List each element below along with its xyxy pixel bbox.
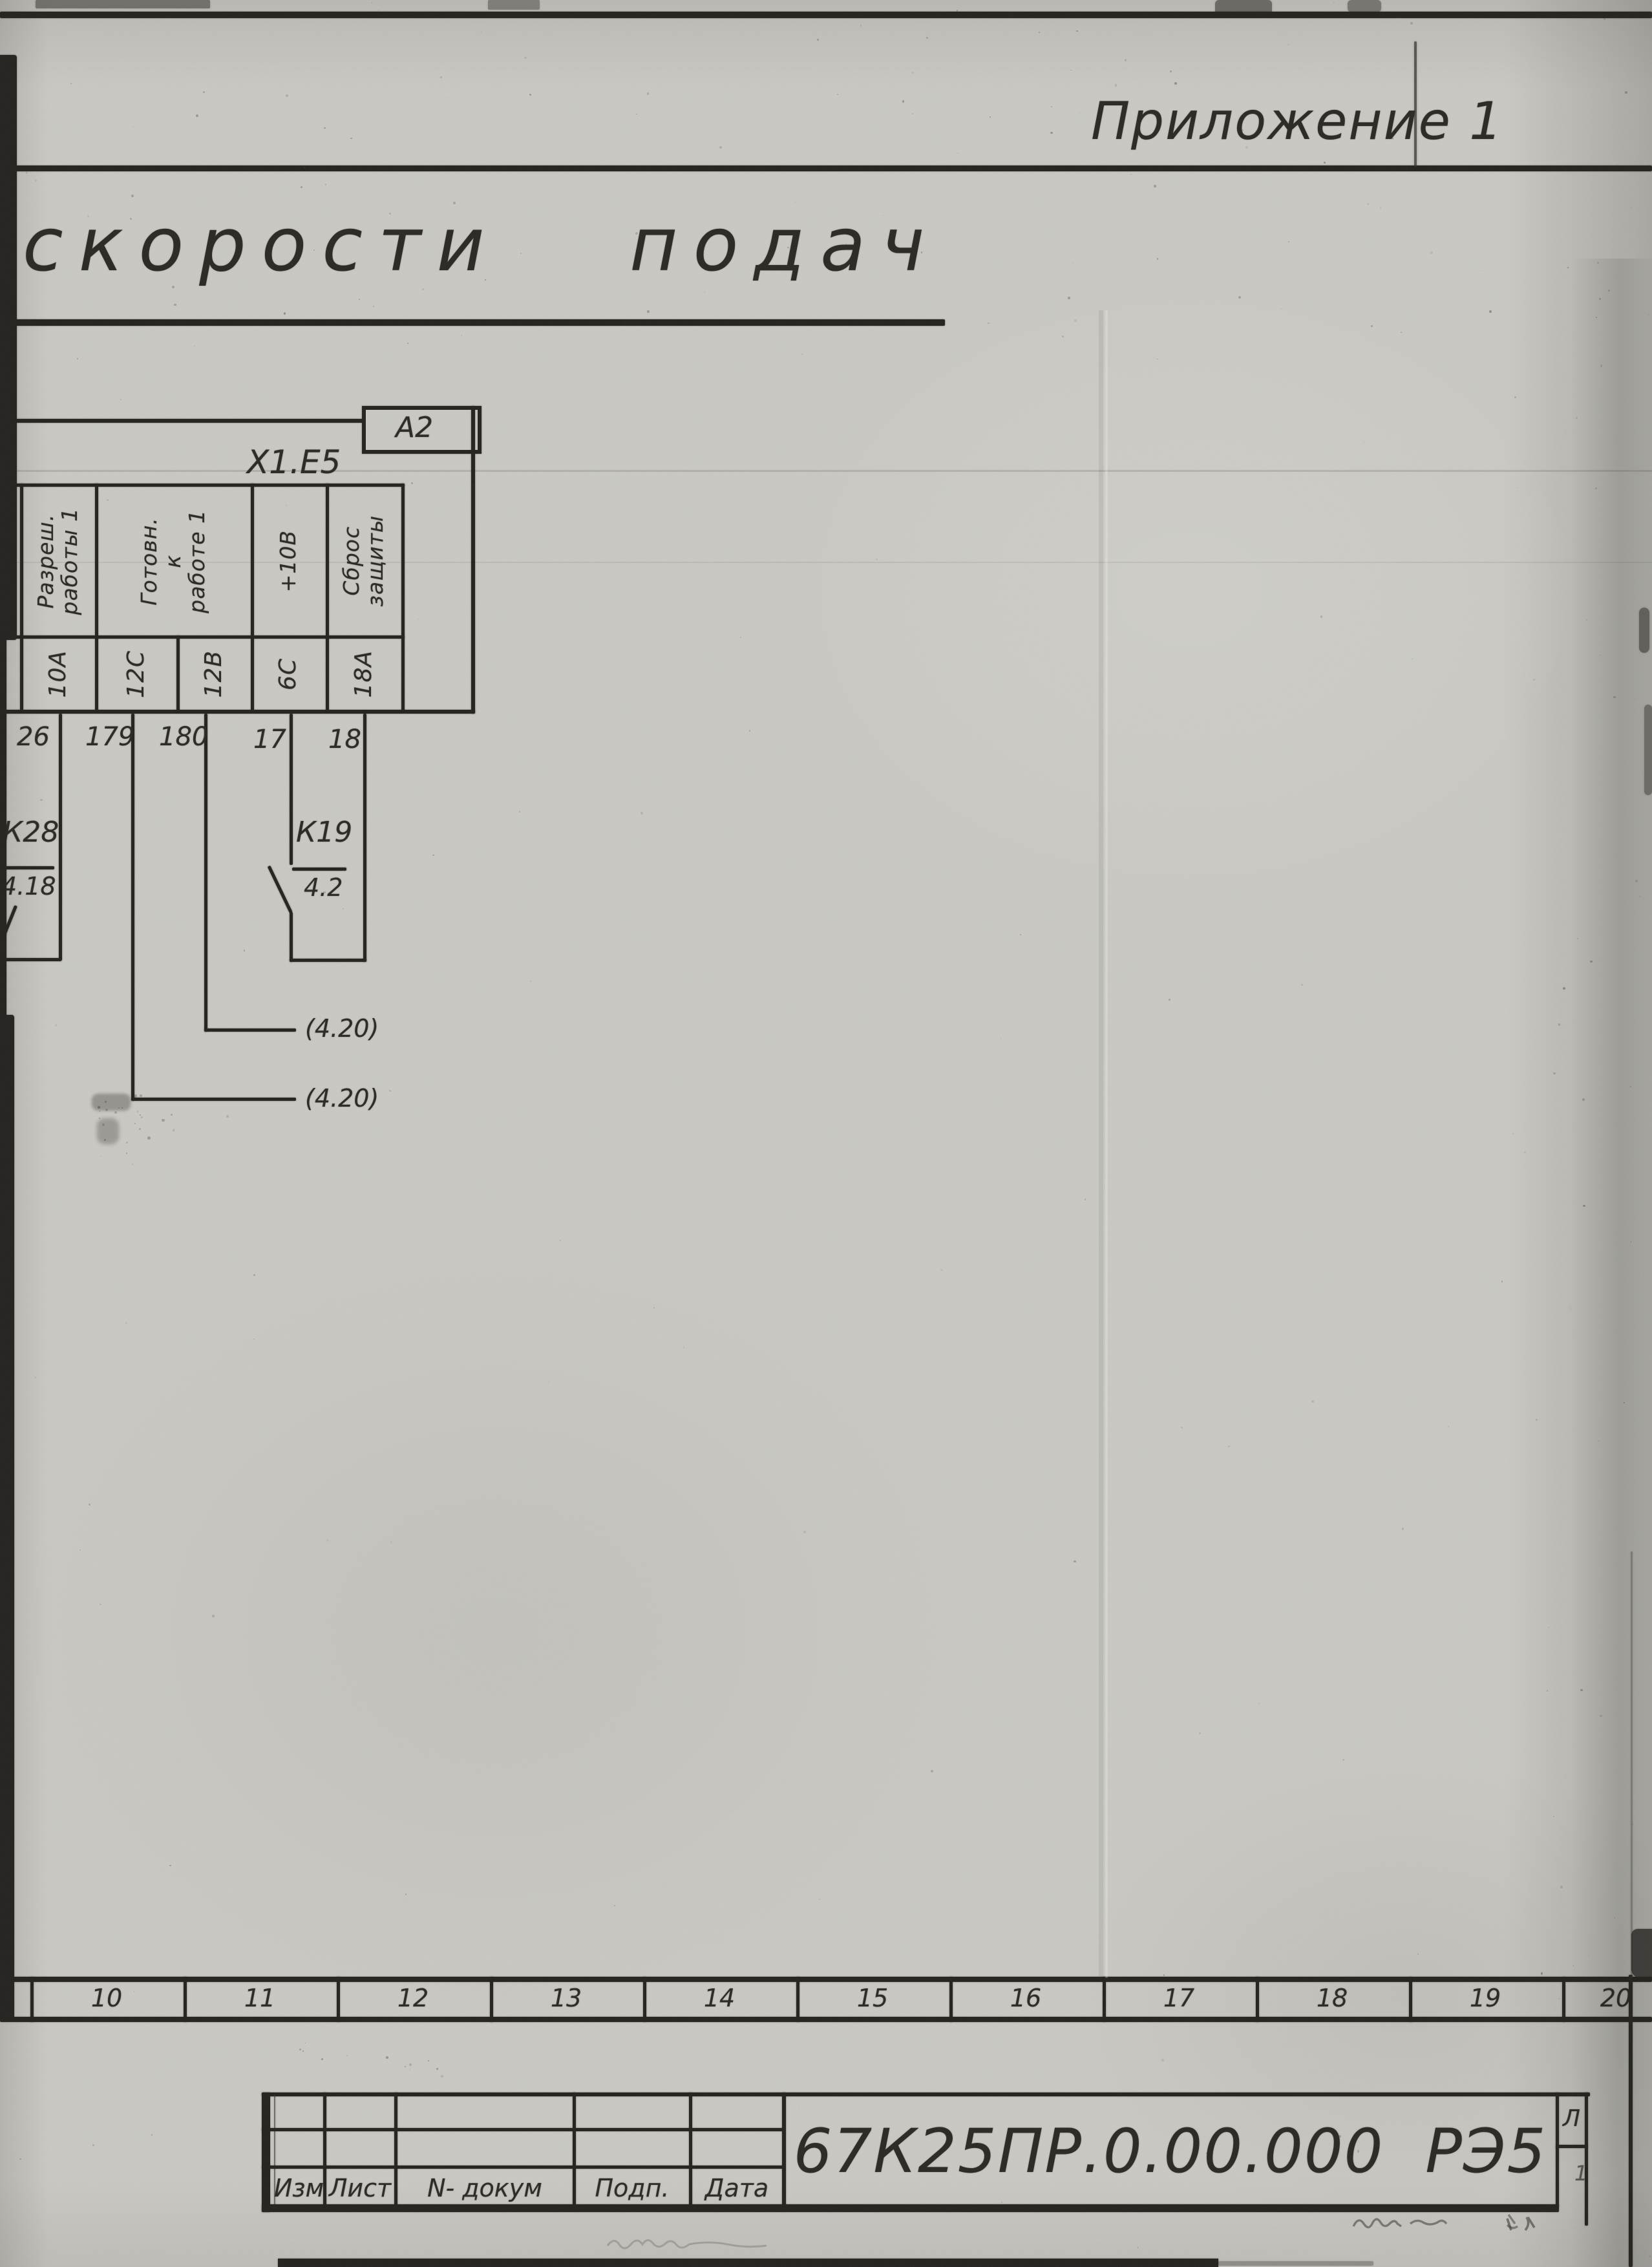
noise-speck <box>147 1136 151 1140</box>
noise-speck <box>548 1381 549 1383</box>
noise-speck <box>125 1322 127 1324</box>
noise-speck <box>126 1142 128 1144</box>
noise-speck <box>1258 1703 1260 1705</box>
noise-speck <box>1524 1151 1526 1153</box>
ruler-number: 14 <box>687 1986 752 2010</box>
noise-speck <box>1050 132 1053 134</box>
noise-speck <box>560 1240 562 1242</box>
titleblock-col-line <box>782 2092 786 2209</box>
noise-speck <box>1558 1023 1560 1025</box>
noise-speck <box>1573 1965 1574 1966</box>
noise-speck <box>1364 442 1365 443</box>
noise-speck <box>114 1111 117 1114</box>
ruler-divider <box>1256 1977 1259 2022</box>
left-binding-bar <box>0 55 17 640</box>
noise-speck <box>1401 332 1402 333</box>
noise-speck <box>719 146 722 149</box>
titleblock-col-data: Дата <box>692 2176 782 2200</box>
pin-cell: 12В <box>180 639 249 710</box>
appendix-label: Приложение 1 <box>1091 96 1503 147</box>
noise-speck <box>1342 1759 1344 1761</box>
noise-speck <box>1583 1205 1585 1207</box>
noise-speck <box>988 323 989 324</box>
noise-speck <box>1648 314 1649 315</box>
off-sheet-ref: (4.20) <box>305 1016 379 1041</box>
noise-speck <box>1580 1689 1582 1691</box>
noise-speck <box>102 1123 105 1126</box>
noise-speck <box>1448 1426 1449 1427</box>
noise-speck <box>1001 1039 1002 1040</box>
noise-speck <box>286 94 288 97</box>
noise-speck <box>120 399 122 401</box>
titleblock-col-list: Лист <box>325 2176 395 2200</box>
noise-speck <box>134 1123 136 1124</box>
pin-label: 18А <box>351 650 377 697</box>
noise-speck <box>1624 1402 1625 1403</box>
noise-speck <box>902 100 905 103</box>
noise-speck <box>921 251 922 253</box>
pin-cell: 12С <box>98 639 175 710</box>
noise-speck <box>99 1118 100 1119</box>
noise-speck <box>1125 59 1127 61</box>
noise-speck <box>172 286 175 288</box>
noise-speck <box>1174 82 1177 85</box>
ruler-number: 13 <box>534 1986 598 2010</box>
noise-speck <box>1558 1998 1560 1999</box>
noise-speck <box>1392 138 1393 139</box>
noise-speck <box>418 619 419 621</box>
contact-k19-blade <box>268 866 293 913</box>
noise-speck <box>305 2043 306 2043</box>
noise-speck <box>624 321 626 323</box>
noise-speck <box>1631 208 1632 209</box>
noise-speck <box>428 2060 429 2061</box>
center-fold-crease <box>1099 310 1103 1978</box>
noise-speck <box>730 1811 731 1812</box>
noise-speck <box>1242 129 1244 131</box>
noise-speck <box>1565 169 1566 171</box>
noise-speck <box>105 1109 109 1112</box>
noise-speck <box>453 202 456 204</box>
noise-speck <box>1608 290 1610 292</box>
noise-speck <box>1604 18 1605 20</box>
noise-speck <box>26 171 28 173</box>
noise-speck <box>100 1111 100 1111</box>
center-fold-highlight <box>1105 310 1108 1978</box>
contact-k28-fraction-bar <box>0 866 54 869</box>
noise-speck <box>410 2069 410 2070</box>
contact-k19-fraction-bar <box>292 867 346 871</box>
noise-speck <box>343 231 345 233</box>
corner-cell-divider <box>1556 2145 1588 2148</box>
noise-speck <box>1357 2150 1359 2152</box>
noise-speck <box>1644 1272 1644 1273</box>
noise-speck <box>174 304 176 306</box>
corner-sheet-label: Л <box>1563 2107 1580 2131</box>
noise-speck <box>817 39 819 41</box>
signal-line: к <box>162 509 185 613</box>
device-block-right-line <box>471 406 475 714</box>
noise-speck <box>151 2134 153 2136</box>
noise-speck <box>325 184 327 186</box>
wire-number: 26 <box>17 724 50 750</box>
noise-speck <box>1410 22 1413 25</box>
noise-speck <box>737 1482 738 1483</box>
noise-speck <box>1635 698 1636 699</box>
noise-speck <box>1367 203 1369 205</box>
noise-speck <box>378 10 379 11</box>
noise-speck <box>171 1114 173 1116</box>
wire-number: 17 <box>253 727 286 752</box>
noise-speck <box>1563 987 1565 990</box>
scan-edge-smudge <box>1348 0 1381 12</box>
noise-speck <box>40 799 42 801</box>
noise-speck <box>519 811 520 812</box>
noise-speck <box>1280 308 1282 310</box>
titleblock-left-border <box>262 2092 270 2212</box>
noise-speck <box>1590 961 1593 963</box>
noise-speck <box>1533 679 1535 681</box>
noise-speck <box>636 114 637 114</box>
noise-speck <box>1489 310 1491 312</box>
noise-speck <box>253 1339 255 1340</box>
noise-speck <box>359 299 360 300</box>
noise-speck <box>141 1116 143 1118</box>
noise-speck <box>756 176 757 177</box>
noise-speck <box>1076 30 1077 32</box>
titleblock-row-line <box>262 2166 784 2169</box>
noise-speck <box>912 72 914 74</box>
noise-speck <box>1600 1715 1602 1717</box>
noise-speck <box>464 324 467 326</box>
titleblock-col-podp: Подп. <box>575 2176 689 2200</box>
wire-179-elbow <box>131 1098 296 1101</box>
pin-cell: 10А <box>23 639 93 710</box>
noise-speck <box>1402 1527 1404 1530</box>
contact-k19-bottom <box>290 959 366 962</box>
noise-speck <box>194 346 195 347</box>
noise-speck <box>1517 487 1518 489</box>
noise-speck <box>1600 655 1601 656</box>
noise-speck <box>291 263 293 266</box>
noise-speck <box>647 310 649 312</box>
noise-speck <box>1541 1972 1543 1975</box>
document-number: 67К25ПР.0.00.000 РЭ5 <box>787 2122 1553 2182</box>
noise-speck <box>1028 217 1030 218</box>
noise-speck <box>169 1865 171 1866</box>
titleblock-row-line <box>262 2128 784 2131</box>
signal-line: Сброс <box>340 515 364 607</box>
noise-speck <box>1380 208 1381 208</box>
noise-speck <box>30 259 33 262</box>
noise-speck <box>35 180 37 182</box>
noise-speck <box>1547 1690 1548 1691</box>
noise-speck <box>1070 70 1072 71</box>
noise-speck <box>55 1024 57 1026</box>
noise-speck <box>1397 16 1399 18</box>
noise-speck <box>647 92 650 95</box>
noise-speck <box>350 138 352 139</box>
noise-speck <box>614 1905 615 1906</box>
ruler-number: 18 <box>1300 1986 1364 2010</box>
noise-speck <box>389 213 391 215</box>
signal-line: защиты <box>364 515 388 607</box>
pin-label: 6С <box>275 658 301 690</box>
noise-speck <box>1412 658 1413 659</box>
noise-speck <box>173 1129 175 1131</box>
signal-line: +10В <box>277 530 301 592</box>
noise-speck <box>440 76 442 78</box>
noise-speck <box>485 279 486 281</box>
noise-speck <box>295 309 295 310</box>
right-fold-line <box>1629 1975 1633 2267</box>
contact-k28-name: К28 <box>3 818 59 847</box>
wire-26 <box>59 714 62 961</box>
noise-speck <box>641 812 643 814</box>
paper-stain <box>97 1118 119 1144</box>
noise-speck <box>1245 146 1248 149</box>
wire-179 <box>131 714 134 1101</box>
noise-speck <box>343 908 344 910</box>
noise-speck <box>302 2050 304 2052</box>
ruler-number: 17 <box>1147 1986 1211 2010</box>
left-binding-bar <box>0 1015 14 2020</box>
noise-speck <box>284 312 286 315</box>
ruler-divider <box>490 1977 493 2022</box>
noise-speck <box>104 1139 105 1140</box>
noise-speck <box>1635 880 1638 882</box>
corner-cell-line <box>1585 2092 1588 2226</box>
noise-speck <box>1051 106 1052 107</box>
noise-speck <box>704 292 706 293</box>
ruler-divider <box>949 1977 953 2022</box>
ruler-number: 15 <box>840 1986 905 2010</box>
wire-18 <box>363 714 366 962</box>
noise-speck <box>860 25 862 26</box>
noise-speck <box>432 855 434 857</box>
titleblock-col-ndoc: N- докум <box>397 2176 573 2200</box>
noise-speck <box>1625 91 1627 94</box>
noise-speck <box>1115 84 1117 86</box>
wire-number: 18 <box>328 727 361 752</box>
noise-speck <box>1596 317 1597 318</box>
corner-tear-wedge <box>1631 1929 1652 1978</box>
noise-speck <box>422 288 424 290</box>
signal-row-top-line <box>0 484 405 487</box>
ruler-divider <box>184 1977 187 2022</box>
ruler-number: 11 <box>228 1986 292 2010</box>
noise-speck <box>1324 162 1326 164</box>
noise-speck <box>912 113 913 114</box>
bottom-edge-band <box>278 2259 1218 2267</box>
contact-k19-name: К19 <box>296 818 352 847</box>
ruler-divider <box>30 1977 34 2022</box>
noise-speck <box>134 1094 137 1098</box>
noise-speck <box>77 358 78 359</box>
noise-speck <box>1600 365 1603 367</box>
noise-speck <box>1549 1627 1549 1628</box>
noise-speck <box>1228 1445 1230 1447</box>
noise-speck <box>101 1156 101 1156</box>
contact-k28-sheet-ref: 4.18 <box>1 874 56 899</box>
noise-speck <box>162 1119 165 1122</box>
noise-speck <box>990 116 991 118</box>
noise-speck <box>1631 1241 1632 1242</box>
ruler-divider <box>643 1977 646 2022</box>
noise-speck <box>212 1615 215 1617</box>
noise-speck <box>1301 984 1303 986</box>
noise-speck <box>801 354 803 355</box>
noise-speck <box>79 1549 81 1551</box>
block-ref-label: А2 <box>396 414 433 442</box>
noise-speck <box>132 1164 133 1165</box>
right-fold-line-upper <box>1631 1551 1633 1978</box>
noise-speck <box>1161 2059 1164 2061</box>
pin-cell: 6С <box>254 639 323 710</box>
noise-speck <box>1417 1953 1419 1955</box>
ruler-divider <box>1562 1977 1565 2022</box>
noise-speck <box>1074 319 1077 322</box>
device-block-top-line <box>0 419 363 423</box>
noise-speck <box>1616 165 1618 167</box>
noise-speck <box>1074 1560 1075 1562</box>
noise-speck <box>926 37 928 39</box>
noise-speck <box>1615 1917 1615 1918</box>
noise-speck <box>1630 1086 1631 1087</box>
ruler-divider <box>337 1977 340 2022</box>
noise-speck <box>461 335 462 336</box>
noise-speck <box>1039 32 1040 33</box>
noise-speck <box>405 2066 406 2067</box>
noise-speck <box>324 341 325 342</box>
noise-speck <box>100 1604 101 1606</box>
noise-speck <box>554 129 555 129</box>
noise-speck <box>227 350 228 351</box>
title-underline <box>0 319 945 326</box>
noise-speck <box>441 2075 443 2078</box>
noise-speck <box>244 950 245 951</box>
ruler-top-line <box>0 1977 1652 1982</box>
noise-speck <box>1062 335 1064 337</box>
page-title: скорости подач <box>23 208 940 282</box>
pin-label: 12С <box>123 650 149 698</box>
off-sheet-ref: (4.20) <box>305 1086 379 1111</box>
noise-speck <box>326 1539 329 1542</box>
noise-speck <box>1613 696 1615 698</box>
noise-speck <box>1079 112 1080 113</box>
ruler-divider <box>1103 1977 1106 2022</box>
noise-speck <box>35 1377 36 1378</box>
noise-speck <box>448 98 449 99</box>
noise-speck <box>252 167 255 170</box>
noise-speck <box>1586 619 1587 621</box>
titleblock-col-izm: Изм <box>271 2176 326 2200</box>
noise-speck <box>520 253 522 254</box>
noise-speck <box>105 1101 107 1103</box>
noise-speck <box>436 2068 438 2070</box>
noise-speck <box>803 1531 806 1533</box>
scan-edge-smudge <box>36 0 210 8</box>
corner-sheet-value: 1 <box>1574 2163 1587 2184</box>
noise-speck <box>837 94 838 94</box>
noise-speck <box>1510 2037 1511 2038</box>
noise-speck <box>1598 1440 1599 1441</box>
pin-label: 12В <box>201 650 227 698</box>
noise-speck <box>140 1094 142 1097</box>
noise-speck <box>1482 270 1483 271</box>
ruler-number: 20 <box>1583 1986 1648 2010</box>
noise-speck <box>1068 297 1070 299</box>
wire-17 <box>290 714 293 865</box>
noise-speck <box>1649 2255 1651 2257</box>
noise-speck <box>1599 298 1601 300</box>
noise-speck <box>137 1111 139 1112</box>
signal-cell-sbros: Сброс защиты <box>329 489 399 633</box>
noise-speck <box>70 83 72 85</box>
signal-cell-gotovn: Готовн. к работе 1 <box>98 489 248 633</box>
noise-speck <box>940 1269 943 1272</box>
noise-speck <box>1640 896 1640 897</box>
noise-speck <box>1238 296 1241 299</box>
noise-speck <box>1553 1072 1555 1074</box>
noise-speck <box>1130 174 1131 175</box>
signal-line: работе 1 <box>185 509 209 613</box>
noise-speck <box>1430 251 1433 254</box>
noise-speck <box>1339 2135 1341 2138</box>
noise-speck <box>411 482 413 484</box>
noise-speck <box>1501 1281 1503 1282</box>
noise-speck <box>819 1899 820 1900</box>
signal-cell-10v: +10В <box>254 489 323 633</box>
connector-label: X1.E5 <box>247 446 341 478</box>
edge-scribble <box>1505 2208 1543 2238</box>
noise-speck <box>321 2058 323 2060</box>
noise-speck <box>131 195 134 197</box>
noise-speck <box>846 244 847 245</box>
noise-speck <box>133 127 134 127</box>
noise-speck <box>1010 1370 1011 1371</box>
noise-speck <box>931 1770 933 1772</box>
noise-speck <box>226 1115 229 1118</box>
wire-180 <box>204 714 207 1032</box>
noise-speck <box>1311 1400 1314 1403</box>
noise-speck <box>118 1107 120 1109</box>
noise-speck <box>529 94 531 96</box>
noise-speck <box>1072 262 1074 264</box>
noise-speck <box>749 730 750 731</box>
ruler-divider <box>796 1977 800 2022</box>
noise-speck <box>1157 258 1158 259</box>
noise-speck <box>303 166 306 169</box>
noise-speck <box>799 2109 800 2109</box>
ruler-number: 12 <box>381 1986 445 2010</box>
noise-speck <box>1371 325 1373 327</box>
noise-speck <box>140 1114 141 1116</box>
noise-speck <box>1169 999 1170 1001</box>
left-binding-bar <box>0 637 6 1018</box>
wire-17-lower <box>290 912 293 962</box>
noise-speck <box>1589 1955 1590 1957</box>
noise-speck <box>1597 262 1599 264</box>
corner-cell-line <box>1556 2092 1559 2208</box>
noise-speck <box>130 218 132 220</box>
edge-tear-mark <box>1639 608 1649 653</box>
noise-speck <box>19 2158 21 2160</box>
noise-speck <box>876 559 878 560</box>
noise-speck <box>89 1504 90 1506</box>
signal-line: Разреш. <box>34 507 58 615</box>
noise-speck <box>1288 44 1289 45</box>
